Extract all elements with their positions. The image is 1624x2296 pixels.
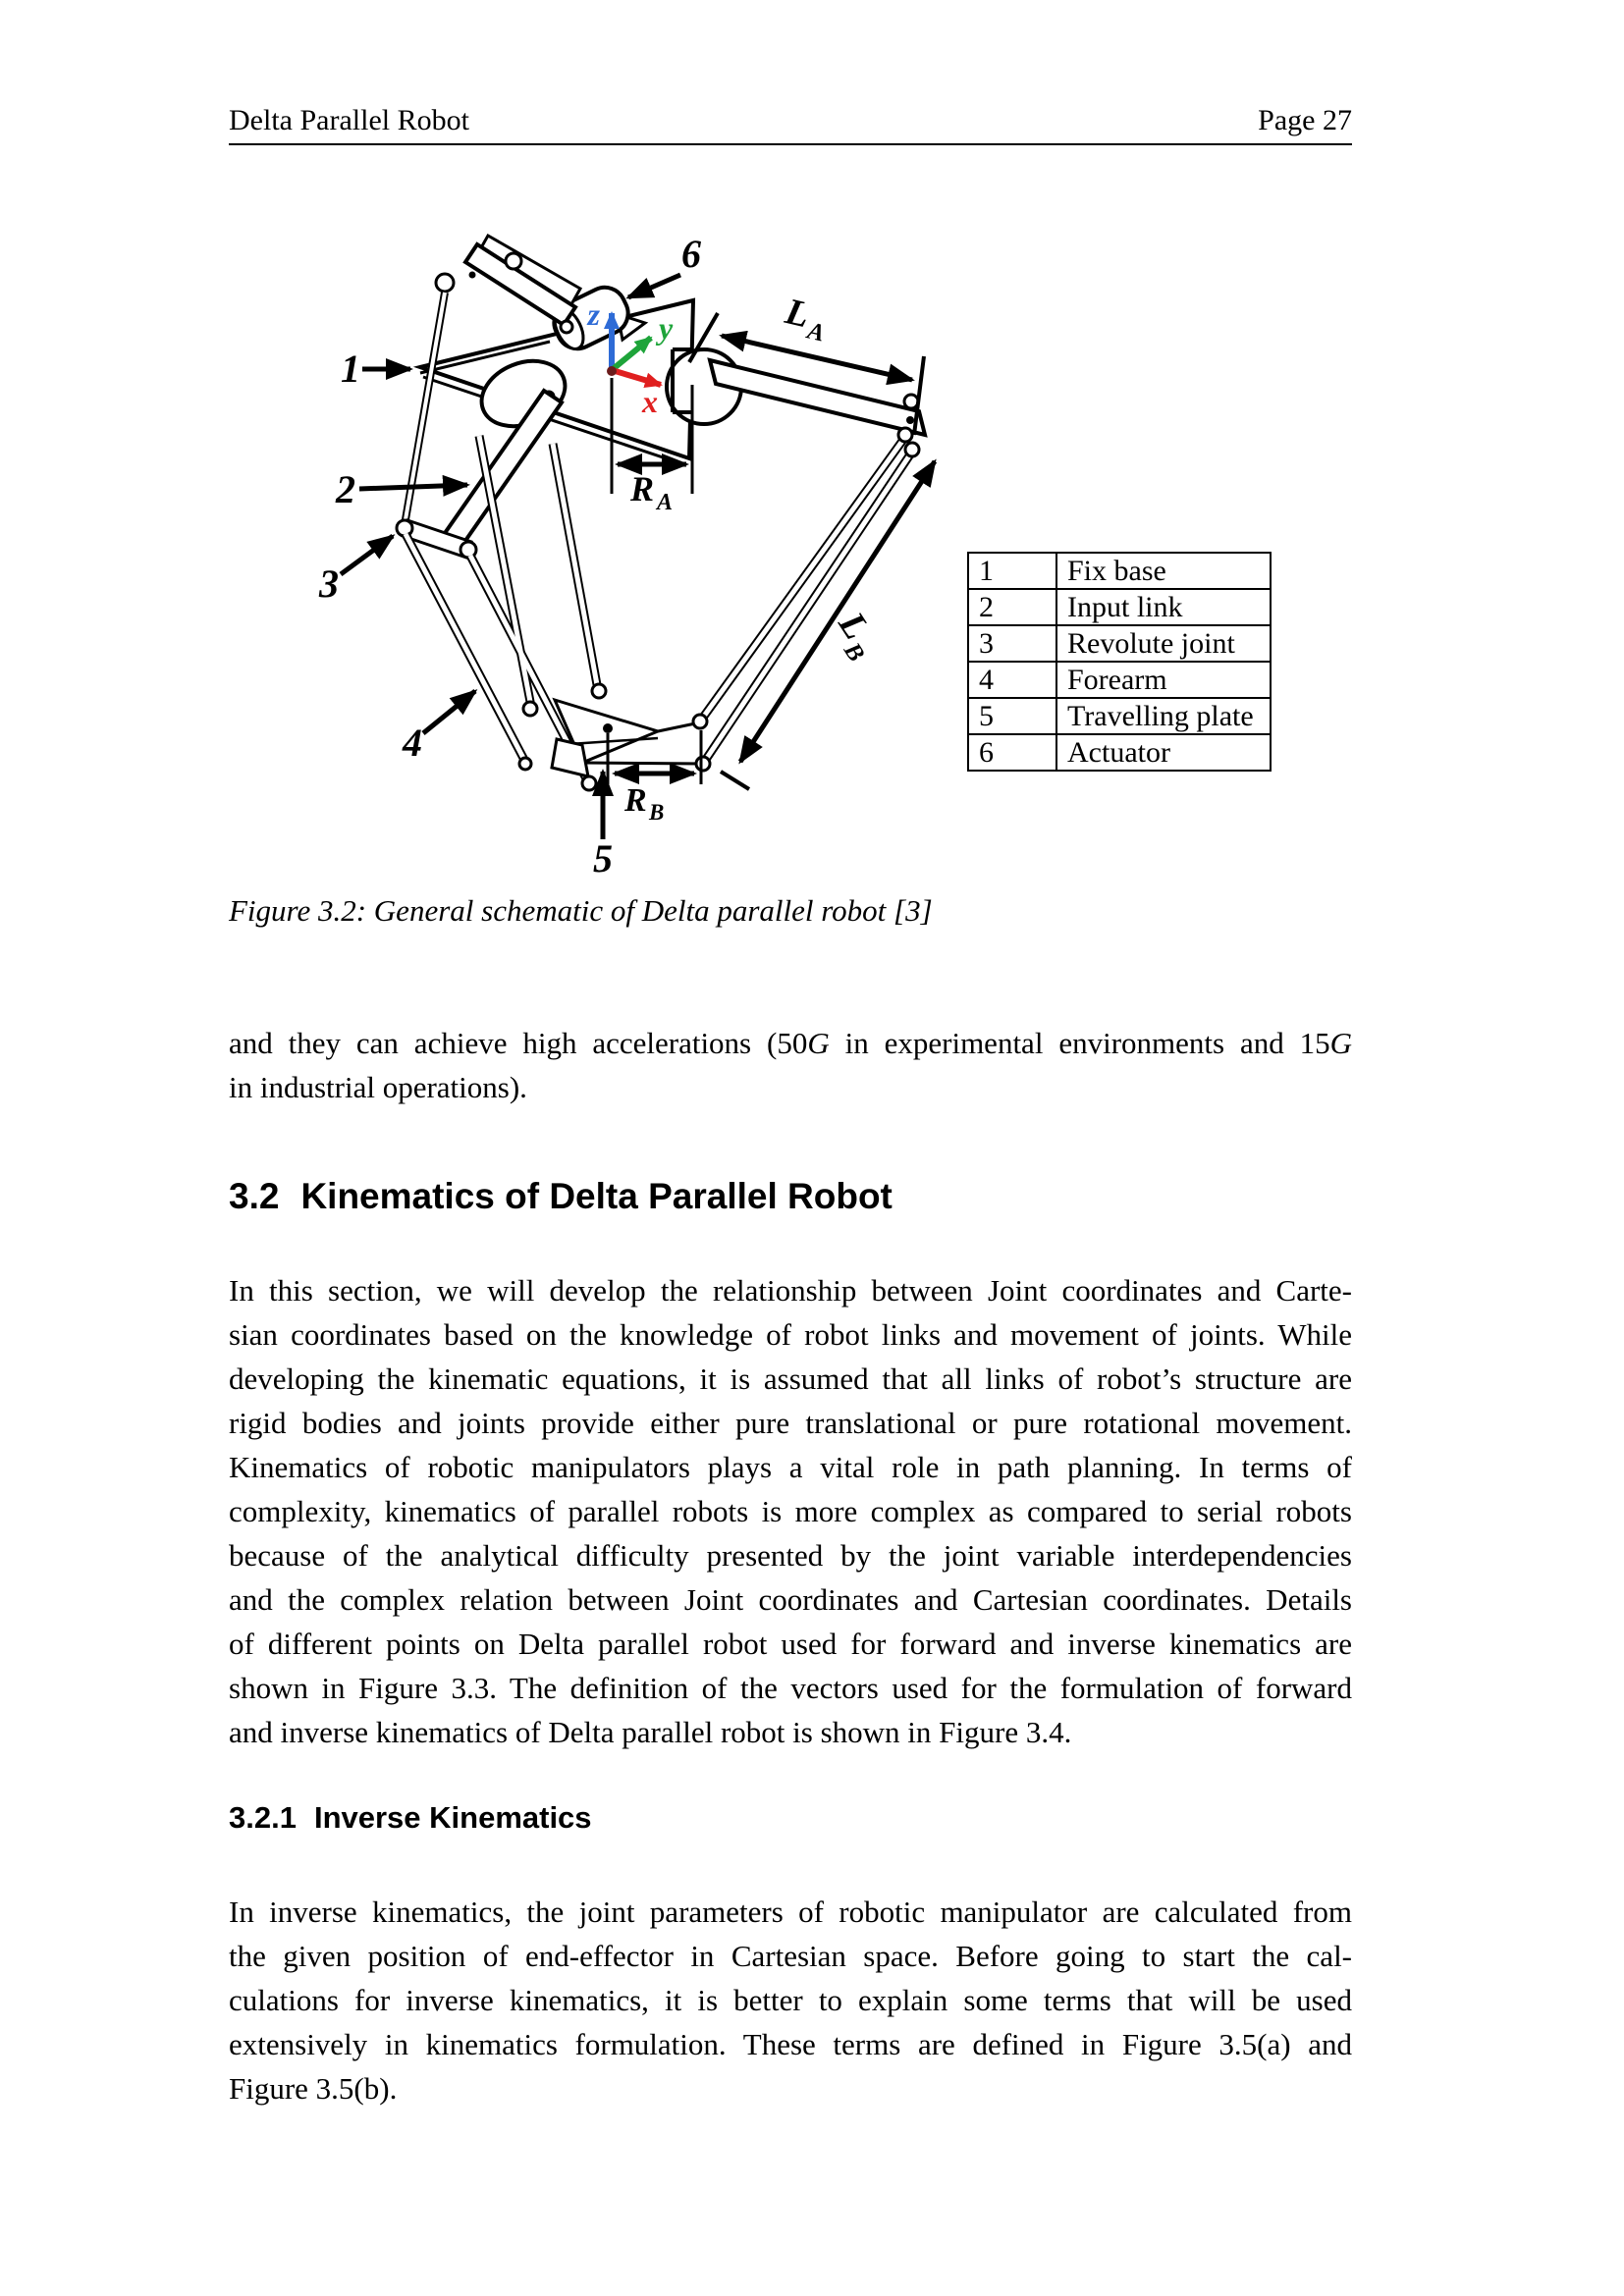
svg-text:B: B xyxy=(648,800,664,825)
svg-text:4: 4 xyxy=(402,721,422,765)
dimension-lb: L B xyxy=(721,461,935,789)
text-line: rigid bodies and joints provide either p… xyxy=(229,1401,1352,1445)
text-line: Kinematics of robotic manipulators plays… xyxy=(229,1445,1352,1489)
table-row: 1 Fix base xyxy=(968,553,1271,589)
table-row: 5 Travelling plate xyxy=(968,698,1271,734)
text-line: complexity, kinematics of parallel robot… xyxy=(229,1489,1352,1533)
paragraph-accelerations: and they can achieve high accelerations … xyxy=(229,1021,1352,1109)
table-row: 6 Actuator xyxy=(968,734,1271,771)
text-line: developing the kinematic equations, it i… xyxy=(229,1357,1352,1401)
text-line: In this section, we will develop the rel… xyxy=(229,1268,1352,1312)
header-title: Delta Parallel Robot xyxy=(229,104,469,137)
text-line: of different points on Delta parallel ro… xyxy=(229,1622,1352,1666)
text-line: and the complex relation between Joint c… xyxy=(229,1577,1352,1622)
svg-text:6: 6 xyxy=(681,232,701,276)
header-rule xyxy=(229,143,1352,145)
text-line: and they can achieve high accelerations … xyxy=(229,1021,1352,1065)
header-page-number: Page 27 xyxy=(1258,104,1352,137)
table-row: 2 Input link xyxy=(968,589,1271,625)
figure-3-2-schematic: R A R B L A L B xyxy=(226,149,962,920)
x-axis-label: x xyxy=(641,384,658,419)
subsection-title: Inverse Kinematics xyxy=(314,1800,592,1835)
section-heading: 3.2Kinematics of Delta Parallel Robot xyxy=(229,1176,1352,1217)
page-header: Delta Parallel Robot Page 27 xyxy=(229,104,1352,137)
section-number: 3.2 xyxy=(229,1176,279,1217)
text-line: shown in Figure 3.3. The definition of t… xyxy=(229,1666,1352,1710)
text-line: because of the analytical difficulty pre… xyxy=(229,1533,1352,1577)
text-line: the given position of end-effector in Ca… xyxy=(229,1934,1352,1978)
svg-text:R: R xyxy=(623,782,647,819)
subsection-heading: 3.2.1Inverse Kinematics xyxy=(229,1800,1352,1836)
figure-caption: Figure 3.2: General schematic of Delta p… xyxy=(229,893,1352,929)
svg-text:5: 5 xyxy=(593,836,613,881)
section-title: Kinematics of Delta Parallel Robot xyxy=(300,1176,892,1216)
paragraph-inverse-kinematics: In inverse kinematics, the joint paramet… xyxy=(229,1890,1352,2110)
origin-point xyxy=(607,366,617,376)
text-line: culations for inverse kinematics, it is … xyxy=(229,1978,1352,2022)
legend-table: 1 Fix base 2 Input link 3 Revolute joint… xyxy=(967,552,1272,772)
svg-text:2: 2 xyxy=(335,467,355,511)
table-row: 4 Forearm xyxy=(968,662,1271,698)
text-line: Figure 3.5(b). xyxy=(229,2066,1352,2110)
text-line: in industrial operations). xyxy=(229,1065,1352,1109)
z-axis-label: z xyxy=(587,296,601,332)
text-line: and inverse kinematics of Delta parallel… xyxy=(229,1710,1352,1754)
paragraph-kinematics: In this section, we will develop the rel… xyxy=(229,1268,1352,1754)
svg-text:3: 3 xyxy=(318,561,339,606)
text-line: sian coordinates based on the knowledge … xyxy=(229,1312,1352,1357)
text-line: extensively in kinematics formulation. T… xyxy=(229,2022,1352,2066)
document-page: Delta Parallel Robot Page 27 xyxy=(0,0,1624,2296)
svg-text:R: R xyxy=(629,469,654,508)
text-line: In inverse kinematics, the joint paramet… xyxy=(229,1890,1352,1934)
svg-text:A: A xyxy=(655,490,673,515)
table-row: 3 Revolute joint xyxy=(968,625,1271,662)
end-effector-point xyxy=(603,723,613,733)
svg-text:1: 1 xyxy=(341,347,360,391)
subsection-number: 3.2.1 xyxy=(229,1800,297,1836)
